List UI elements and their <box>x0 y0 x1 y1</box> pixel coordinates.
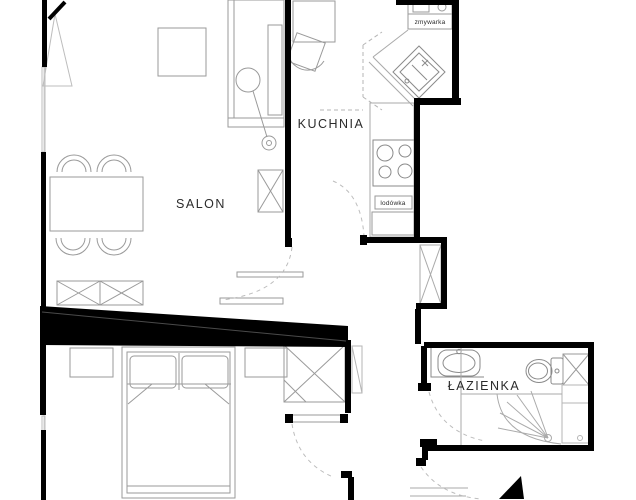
plan-background <box>0 0 636 500</box>
room-label-salon: SALON <box>176 197 226 211</box>
room-label-lazienka: ŁAZIENKA <box>448 379 520 393</box>
floor-plan: SALON KUCHNIA ŁAZIENKA zmywarka lodówka <box>0 0 636 500</box>
room-label-kuchnia: KUCHNIA <box>298 117 365 131</box>
appliance-label-zmywarka: zmywarka <box>415 19 446 26</box>
appliance-label-lodowka: lodówka <box>380 200 405 207</box>
